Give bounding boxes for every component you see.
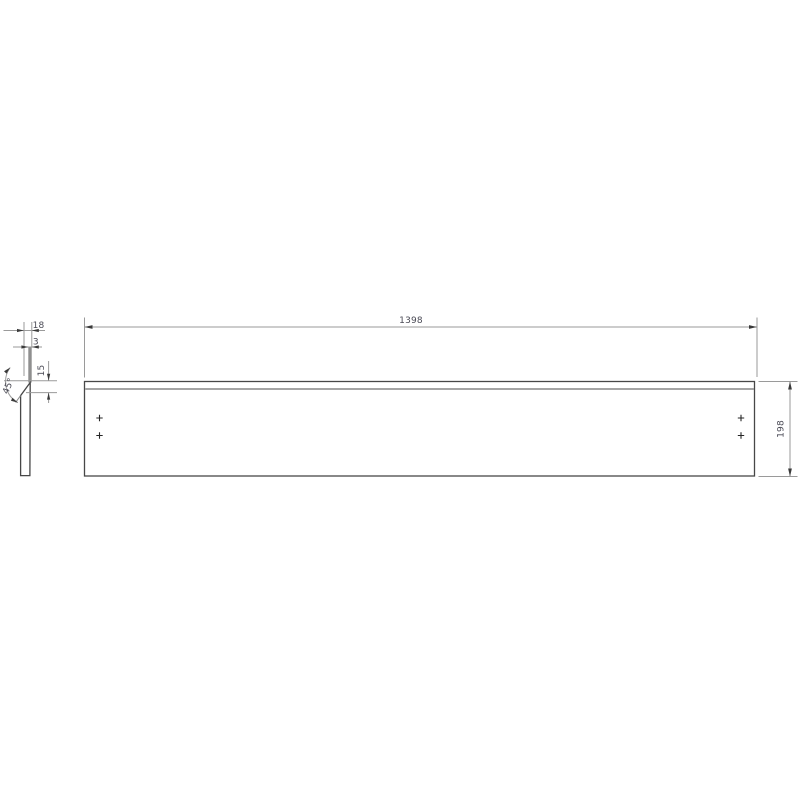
flange-bar (28, 347, 31, 383)
height-dimension: 198 (759, 382, 798, 477)
profile-outline (21, 383, 31, 476)
technical-drawing: 18 3 15 45° (0, 0, 800, 800)
length-dimension: 1398 (85, 316, 758, 378)
length-dim-arrow-left (85, 325, 93, 329)
front-view (85, 382, 755, 477)
panel-face (85, 382, 755, 477)
length-dim-arrow-right (749, 325, 757, 329)
side-view: 18 3 15 45° (1, 321, 57, 476)
height-dim-arrow-bottom (788, 469, 792, 477)
depth-dim-label: 18 (33, 321, 45, 331)
length-dim-label: 1398 (399, 316, 423, 326)
chamfer-dim-label: 15 (37, 365, 47, 377)
lip-dim-arrow-left (21, 345, 28, 348)
drawing-canvas: 18 3 15 45° (0, 0, 800, 800)
chamfer-dim-arrow-top (47, 374, 50, 381)
chamfer-dim-arrow-bottom (47, 393, 50, 400)
angle-dim-label: 45° (1, 377, 16, 396)
lip-dim-label: 3 (33, 338, 39, 348)
height-dim-label: 198 (777, 420, 787, 438)
depth-dim-arrow-left (17, 329, 24, 332)
height-dim-arrow-top (788, 382, 792, 390)
